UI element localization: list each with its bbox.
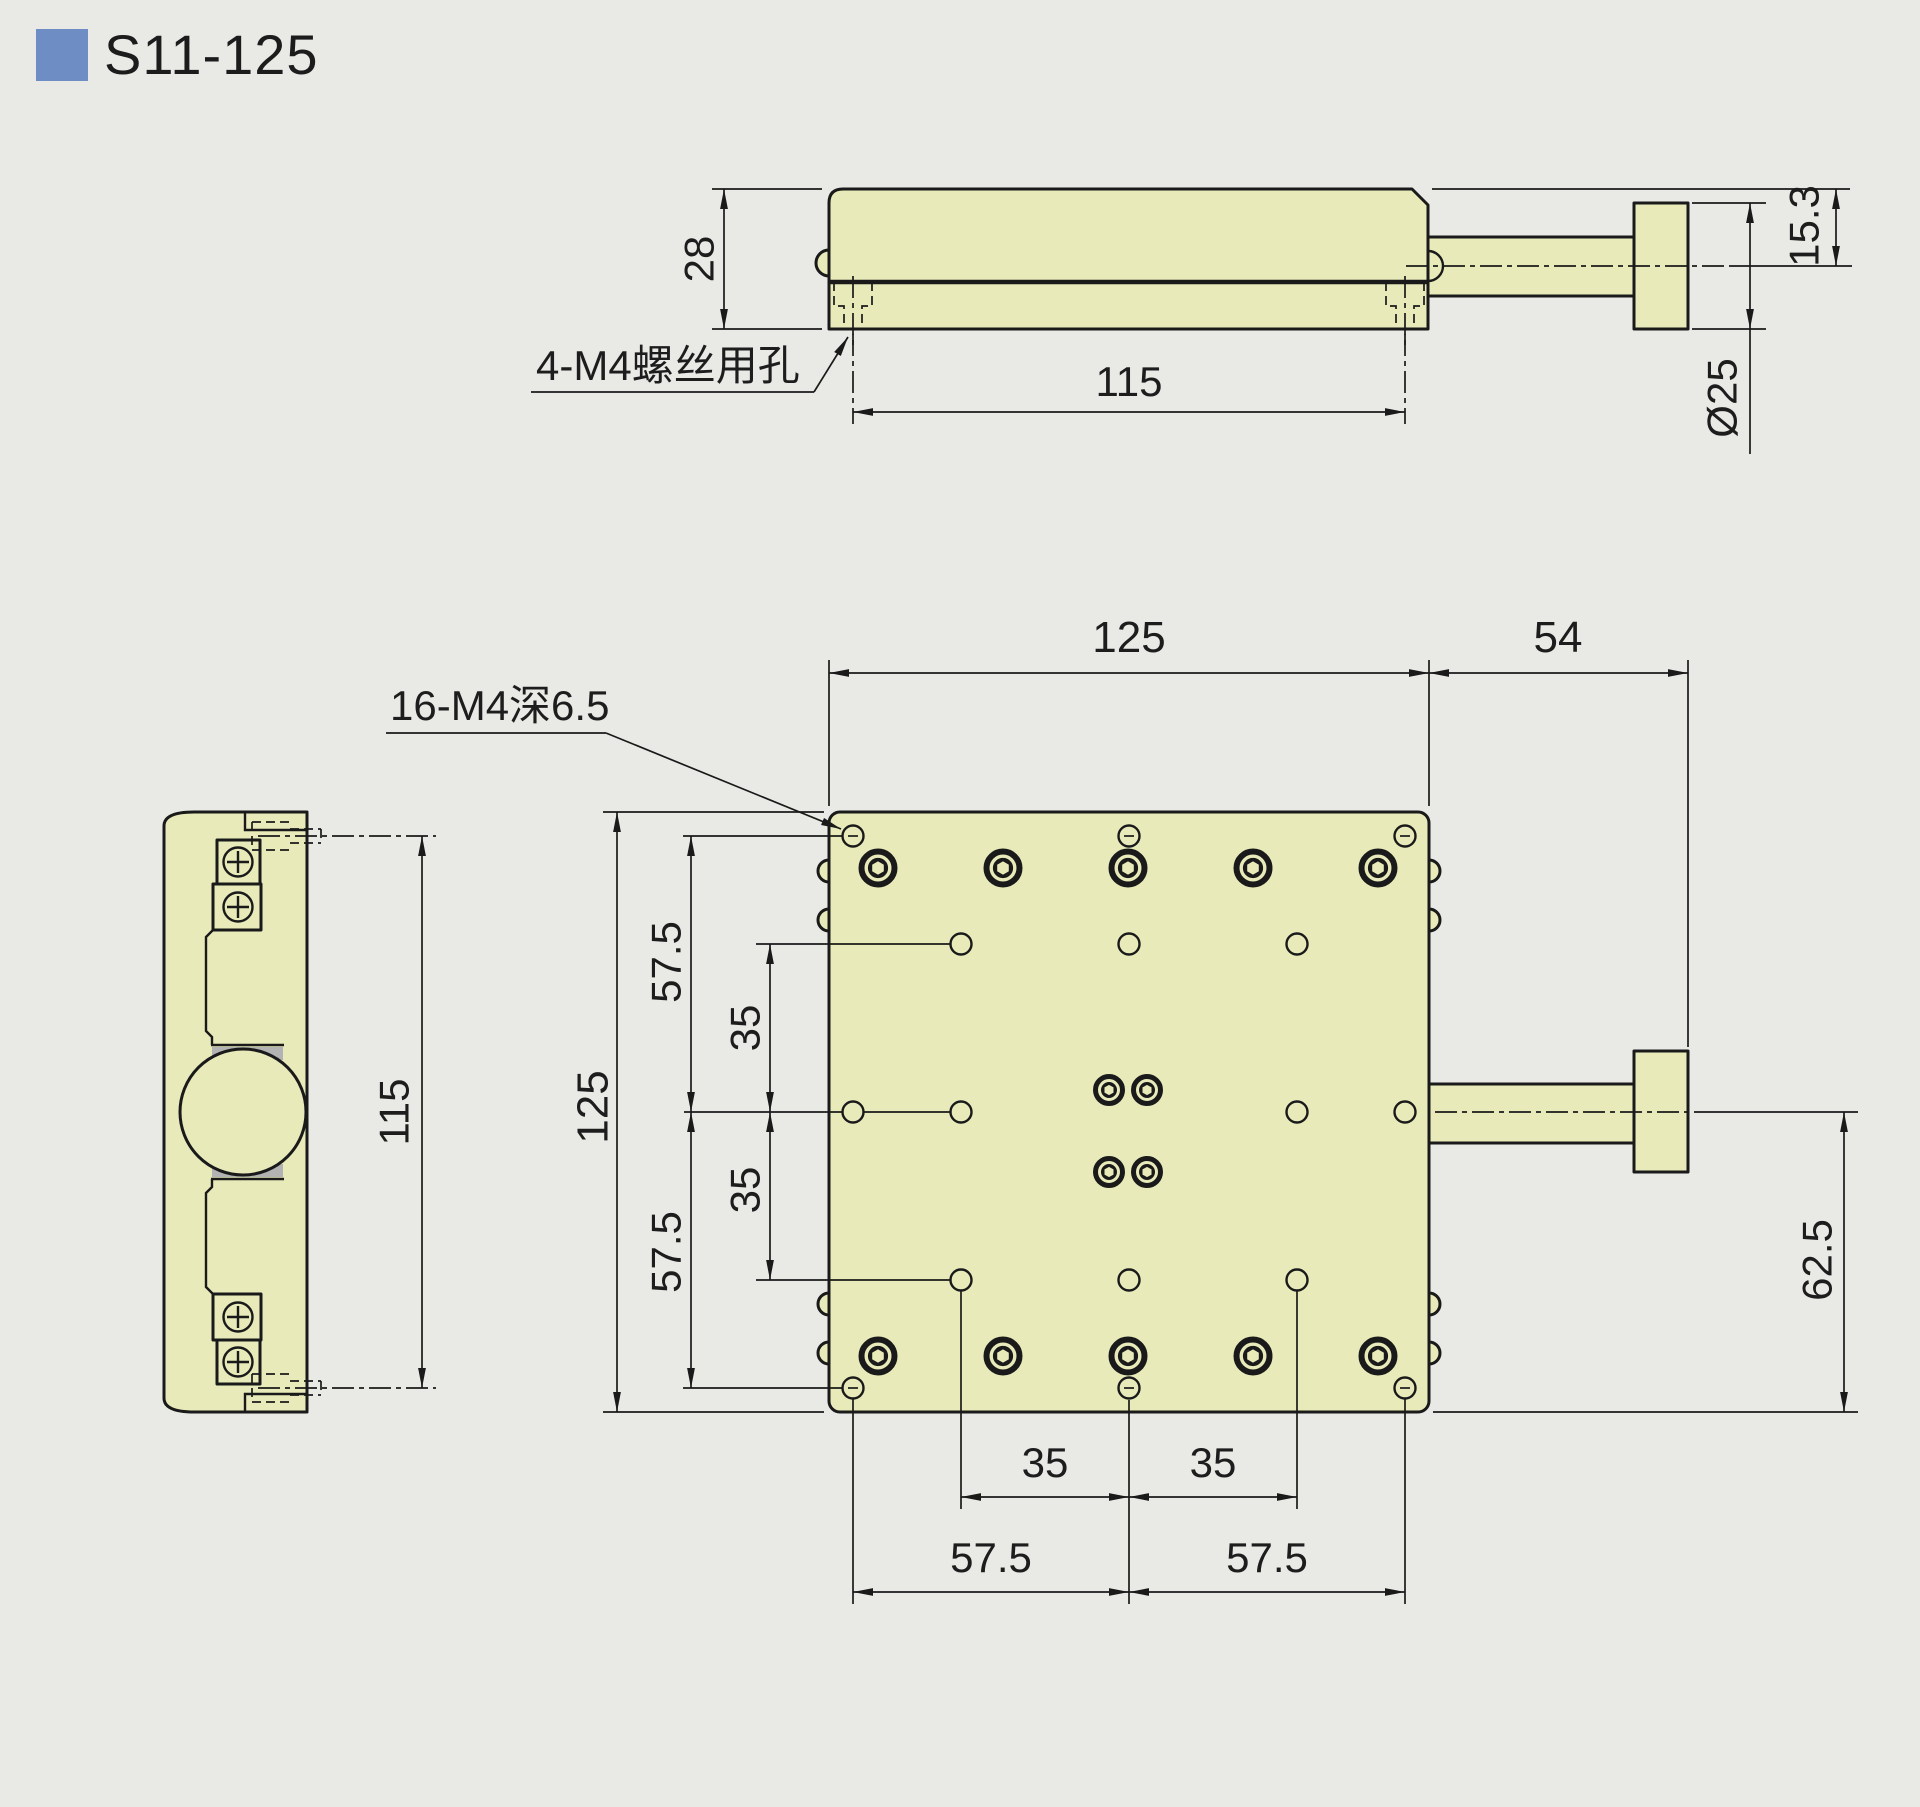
micrometer-shaft-plan	[1429, 1084, 1634, 1143]
dim-body-height: 28	[676, 236, 723, 283]
label-base-screw-holes: 4-M4螺丝用孔	[536, 342, 800, 389]
leader-tapped-holes	[606, 733, 841, 829]
dim-row-lower-inner: 35	[722, 1167, 769, 1214]
dim-col-outer-right: 57.5	[1226, 1534, 1308, 1581]
dim-axis-offset: 15.3	[1781, 185, 1828, 267]
phillips-screw	[224, 848, 253, 877]
side-view: 28 115 15.3 Ø25 4-M4螺丝用孔	[531, 185, 1852, 454]
plan-view: 125 54 125 57.5 35 35 57.5 35 35 57.5 57…	[386, 613, 1858, 1604]
drawing-page: S11-125 28	[0, 0, 1920, 1807]
dim-hole-span-side: 115	[1096, 358, 1163, 405]
dim-plate-width: 125	[1092, 613, 1165, 662]
technical-drawing: 28 115 15.3 Ø25 4-M4螺丝用孔	[0, 0, 1920, 1807]
base-plate-side	[829, 282, 1428, 329]
leadscrew-bearing	[180, 1049, 306, 1175]
dim-col-inner-right: 35	[1190, 1439, 1237, 1486]
dim-row-lower: 57.5	[643, 1211, 690, 1293]
dim-knob-extent: 54	[1534, 613, 1583, 662]
end-view: 115	[164, 812, 436, 1412]
phillips-screw	[224, 1348, 253, 1377]
phillips-screw	[224, 893, 253, 922]
leader-base-screw-holes	[814, 337, 848, 392]
label-tapped-holes: 16-M4深6.5	[390, 682, 609, 729]
dim-knob-diameter: Ø25	[1699, 358, 1746, 437]
moving-table-side	[829, 189, 1428, 282]
dim-row-upper-inner: 35	[722, 1005, 769, 1052]
dim-col-outer-left: 57.5	[950, 1534, 1032, 1581]
dim-row-upper: 57.5	[643, 921, 690, 1003]
dim-axis-to-edge: 62.5	[1794, 1219, 1841, 1301]
phillips-screw	[224, 1303, 253, 1332]
dim-plate-height: 125	[569, 1070, 618, 1143]
dim-col-inner-left: 35	[1022, 1439, 1069, 1486]
leadscrew-end-side	[816, 250, 829, 276]
dim-hole-span-end: 115	[371, 1079, 418, 1146]
